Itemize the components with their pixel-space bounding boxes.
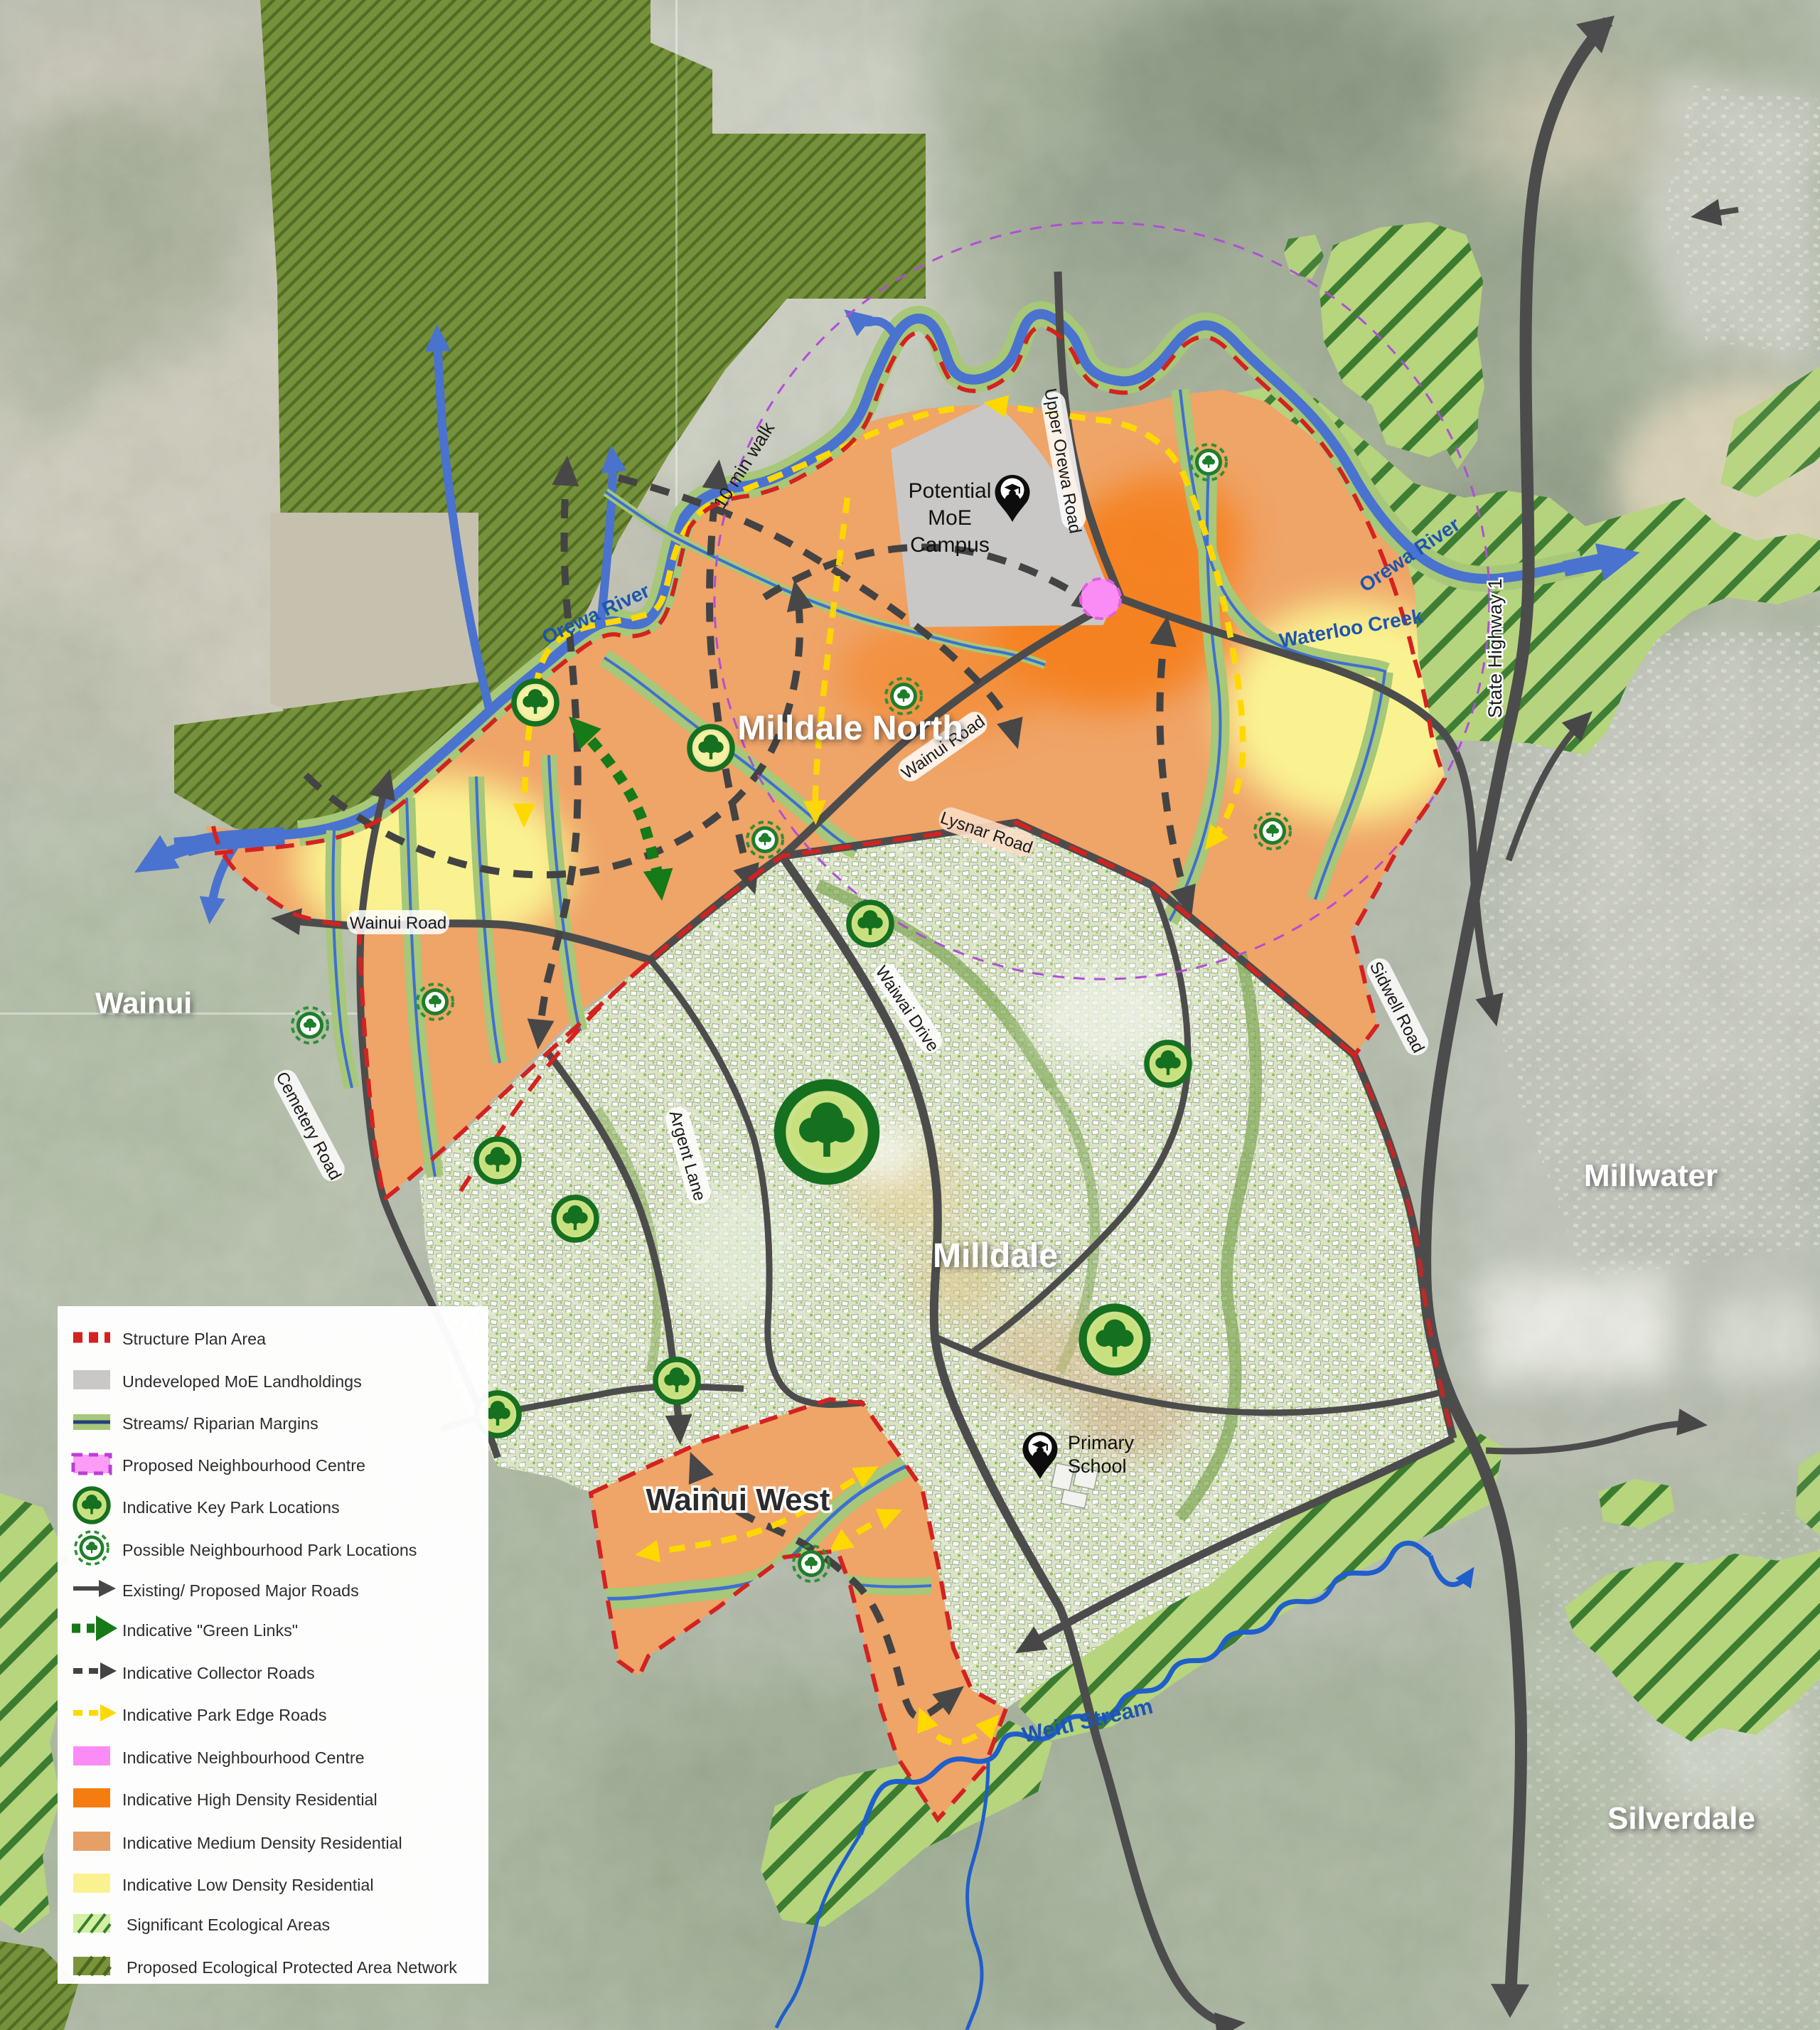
svg-text:Indicative Low Density Residen: Indicative Low Density Residential bbox=[122, 1876, 374, 1894]
svg-text:Milldale North: Milldale North bbox=[737, 710, 963, 747]
svg-text:Indicative Key Park Locations: Indicative Key Park Locations bbox=[122, 1498, 340, 1517]
svg-text:Significant Ecological Areas: Significant Ecological Areas bbox=[127, 1916, 330, 1934]
svg-text:Undeveloped MoE Landholdings: Undeveloped MoE Landholdings bbox=[122, 1372, 362, 1391]
svg-text:Silverdale: Silverdale bbox=[1607, 1801, 1755, 1836]
svg-text:Proposed Neighbourhood Centre: Proposed Neighbourhood Centre bbox=[122, 1456, 365, 1475]
svg-text:Campus: Campus bbox=[910, 533, 990, 557]
svg-text:Indicative Park Edge Roads: Indicative Park Edge Roads bbox=[122, 1706, 327, 1724]
svg-text:Potential: Potential bbox=[909, 479, 992, 503]
svg-text:School: School bbox=[1068, 1455, 1127, 1477]
svg-text:Possible Neighbourhood Park Lo: Possible Neighbourhood Park Locations bbox=[122, 1541, 417, 1559]
svg-text:Wainui: Wainui bbox=[95, 986, 192, 1020]
svg-text:Wainui Road: Wainui Road bbox=[350, 914, 447, 933]
svg-text:Indicative Collector Roads: Indicative Collector Roads bbox=[122, 1664, 315, 1682]
svg-text:Existing/ Proposed Major Roads: Existing/ Proposed Major Roads bbox=[122, 1581, 359, 1600]
svg-text:Indicative Neighbourhood Centr: Indicative Neighbourhood Centre bbox=[122, 1748, 365, 1767]
svg-text:Primary: Primary bbox=[1068, 1432, 1134, 1453]
svg-text:State Highway 1: State Highway 1 bbox=[1484, 578, 1506, 718]
svg-text:Structure Plan Area: Structure Plan Area bbox=[122, 1330, 266, 1348]
svg-text:MoE: MoE bbox=[928, 506, 972, 530]
svg-text:Indicative "Green Links": Indicative "Green Links" bbox=[122, 1621, 298, 1640]
svg-text:Indicative High Density Reside: Indicative High Density Residential bbox=[122, 1790, 378, 1809]
svg-text:Millwater: Millwater bbox=[1584, 1158, 1718, 1193]
svg-text:Indicative Medium Density Resi: Indicative Medium Density Residential bbox=[122, 1834, 402, 1852]
svg-text:Streams/ Riparian Margins: Streams/ Riparian Margins bbox=[122, 1414, 318, 1433]
svg-text:Wainui West: Wainui West bbox=[646, 1483, 830, 1517]
svg-text:Proposed Ecological Protected: Proposed Ecological Protected Area Netwo… bbox=[127, 1958, 457, 1977]
svg-text:Milldale: Milldale bbox=[933, 1237, 1058, 1275]
